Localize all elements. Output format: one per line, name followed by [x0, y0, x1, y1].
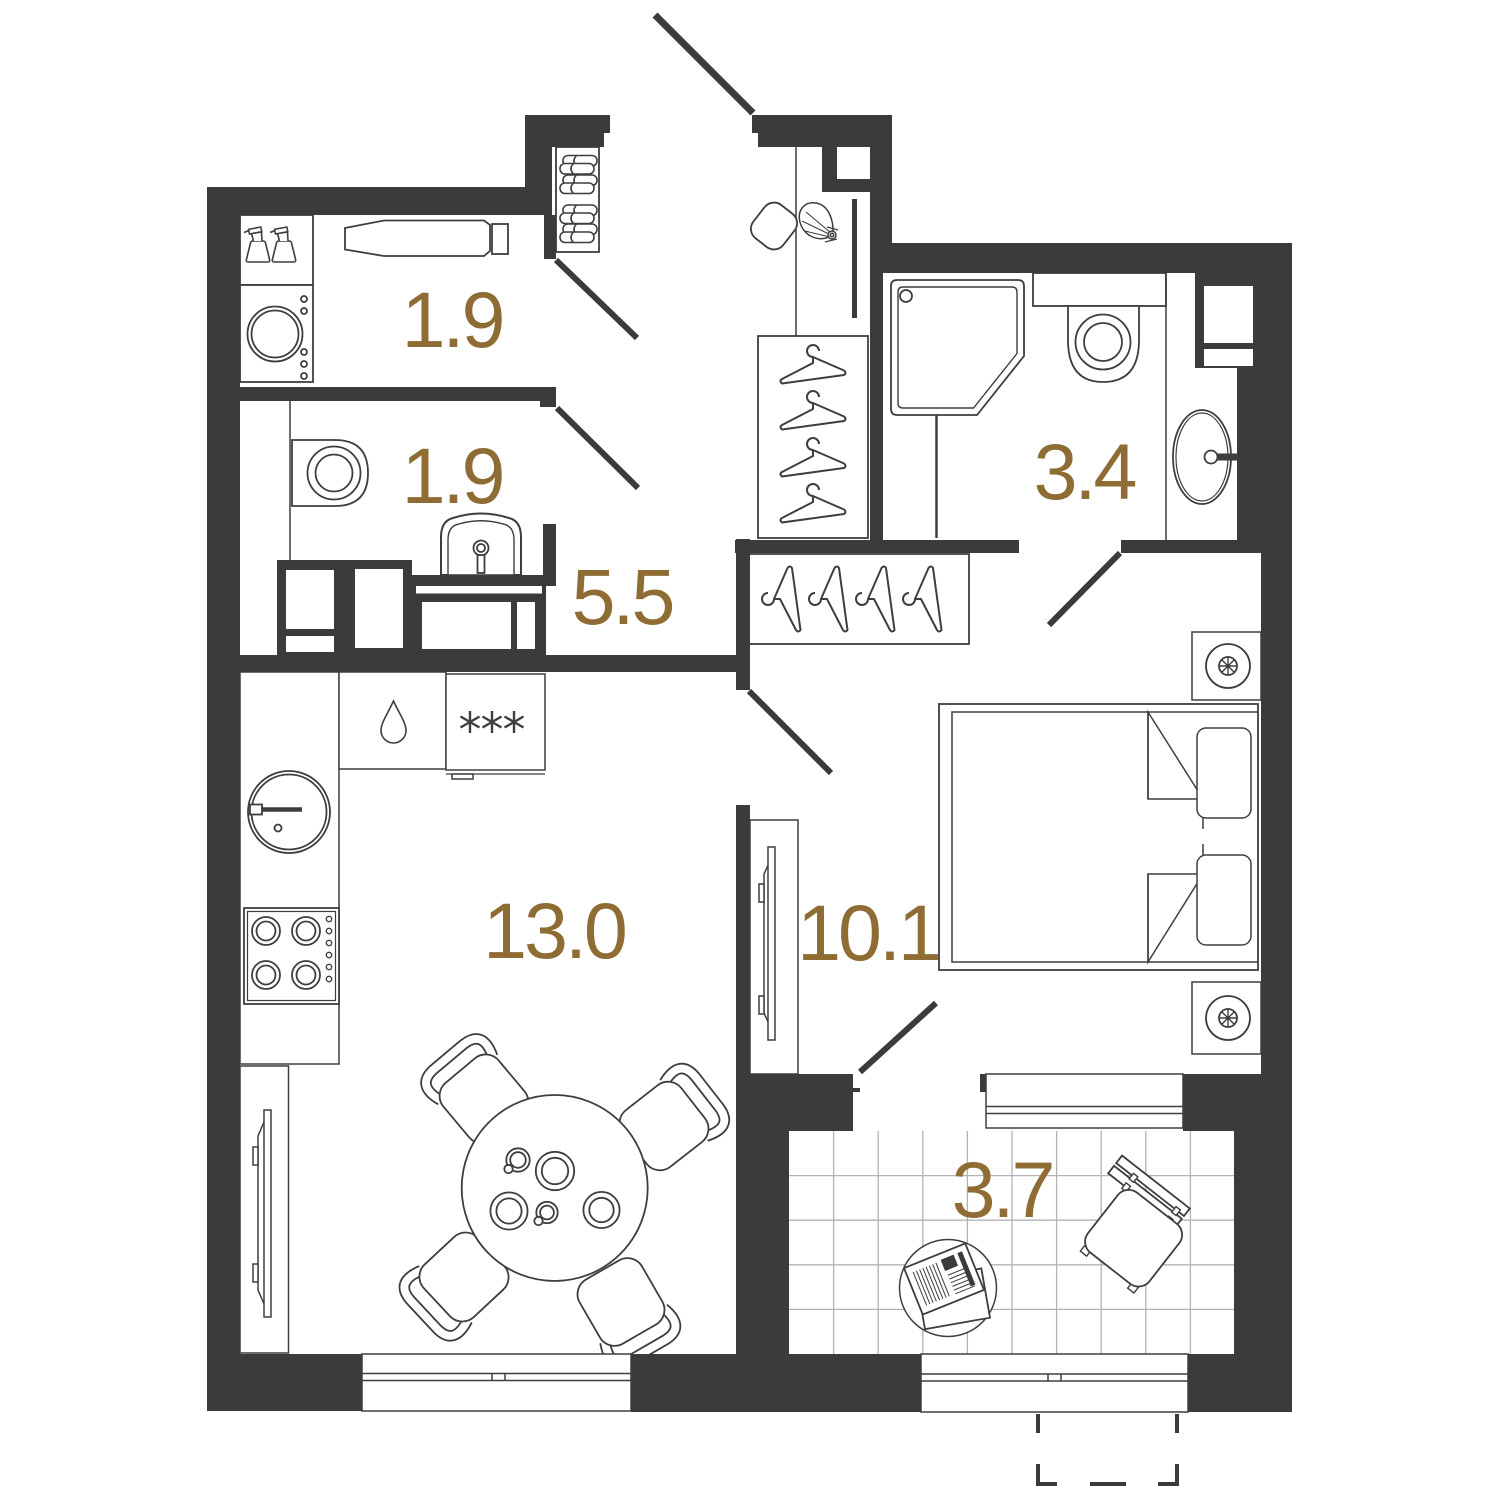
svg-text:1.9: 1.9 [402, 275, 503, 364]
svg-text:5.5: 5.5 [572, 552, 673, 641]
svg-text:3.7: 3.7 [952, 1145, 1053, 1234]
svg-text:13.0: 13.0 [483, 886, 625, 975]
svg-text:3.4: 3.4 [1034, 427, 1136, 516]
svg-text:10.1: 10.1 [797, 888, 939, 977]
svg-text:1.9: 1.9 [402, 431, 503, 520]
